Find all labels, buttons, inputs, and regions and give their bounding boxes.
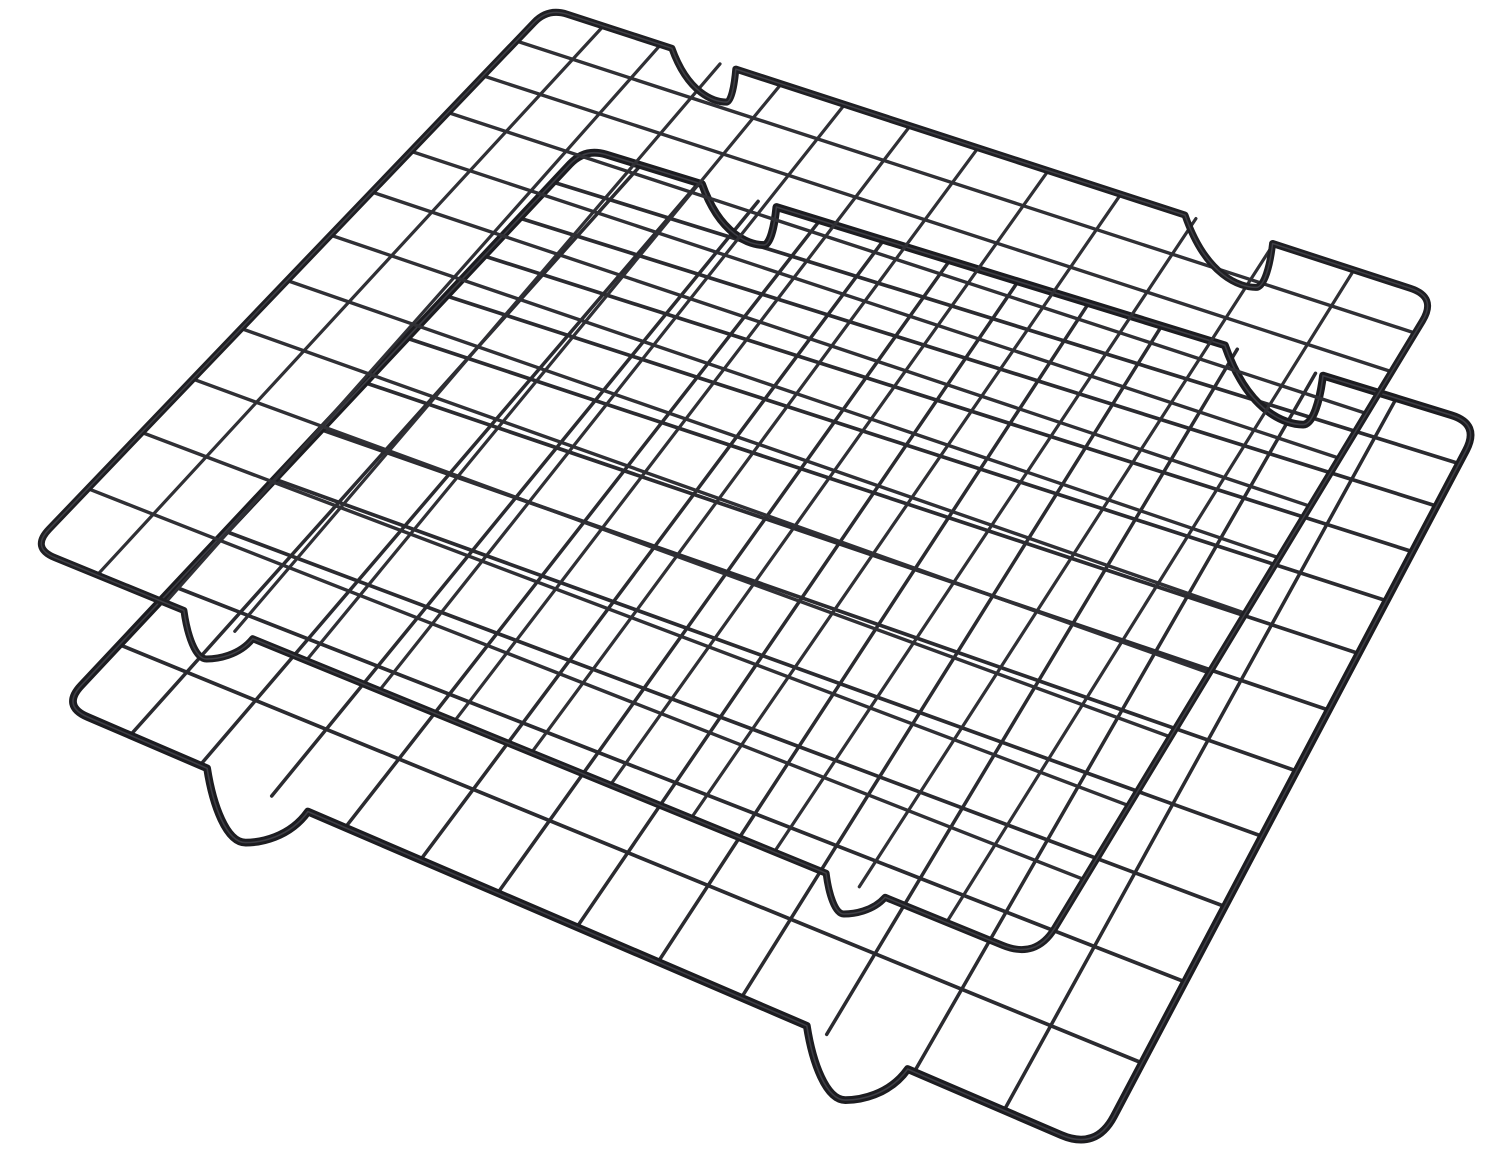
cooling-racks-illustration: [0, 0, 1500, 1172]
white-background: [0, 0, 1500, 1172]
product-photo: [0, 0, 1500, 1172]
